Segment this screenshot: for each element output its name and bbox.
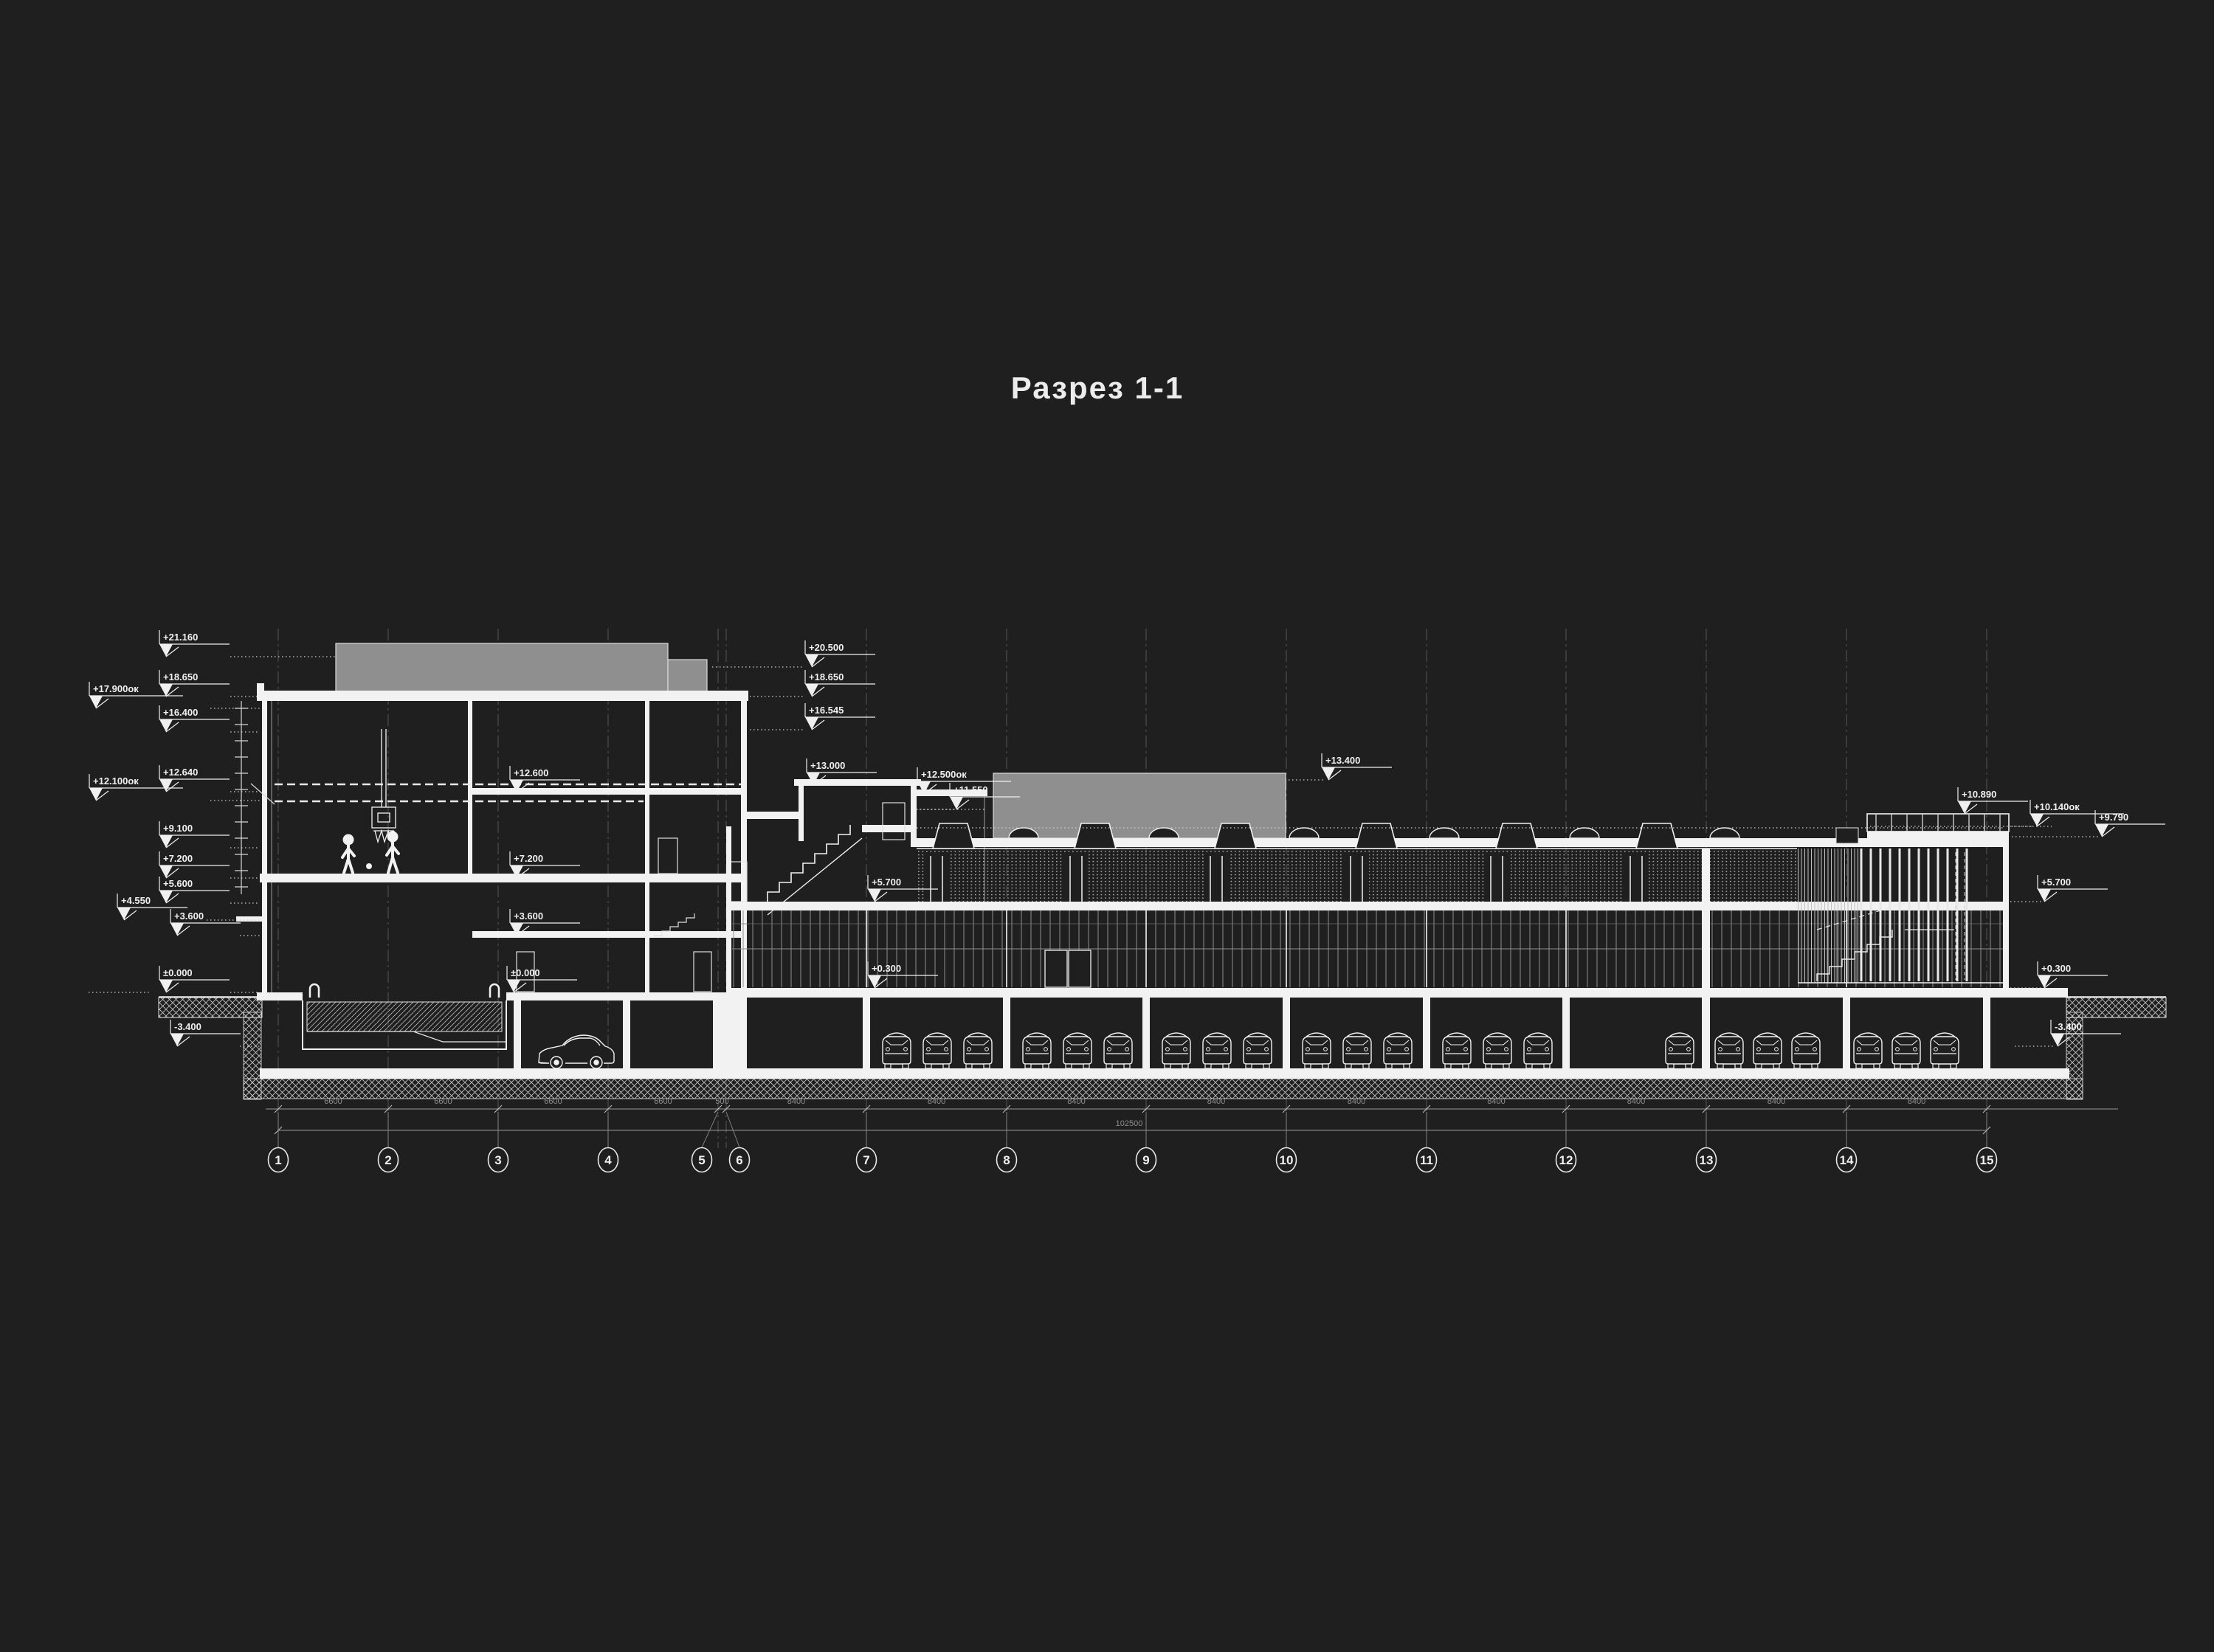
grid-bubble: 12 <box>1556 1112 1576 1172</box>
roof-vent-icon <box>933 823 974 849</box>
facade-ladder-icon <box>235 701 275 894</box>
elevation-value: +7.200 <box>514 853 543 864</box>
car-icon <box>1162 1033 1190 1068</box>
elevation-value: +16.400 <box>163 707 198 718</box>
car-icon <box>1023 1033 1051 1068</box>
ground-slab <box>726 988 2009 998</box>
pool-ladder-icon <box>490 984 499 998</box>
grid-bubble-number: 15 <box>1980 1153 1994 1167</box>
dim-label: 500 <box>715 1097 728 1106</box>
dim-label: 6600 <box>654 1097 672 1106</box>
elevation-value: +10.140ок <box>2034 801 2080 812</box>
elevation-value: +5.700 <box>2041 877 2071 888</box>
dim-label: 8400 <box>1627 1097 1645 1106</box>
elevation-mark: +10.890 <box>1958 787 2028 814</box>
grid-bubble-number: 3 <box>494 1153 501 1167</box>
left-building <box>235 643 748 1077</box>
grid-bubble: 11 <box>1417 1112 1437 1172</box>
elevation-value: +4.550 <box>121 895 151 906</box>
elevation-mark: +9.100 <box>159 821 230 848</box>
elevation-mark: -3.400 <box>170 1020 241 1046</box>
left-wall <box>262 699 267 995</box>
basement-column <box>623 1000 630 1068</box>
basketball-hoop-icon <box>372 729 396 842</box>
left-building-right-wall <box>741 699 747 1077</box>
elevation-value: -3.400 <box>2055 1021 2082 1032</box>
section-drawing: Разрез 1-1 <box>0 0 2214 1652</box>
car-icon <box>1854 1033 1882 1068</box>
elevation-mark: +20.500 <box>805 640 875 667</box>
grid-bubble: 4 <box>599 1112 618 1172</box>
dim-label: 6600 <box>544 1097 562 1106</box>
dim-label: 8400 <box>1768 1097 1785 1106</box>
grid-bubble-number: 9 <box>1142 1153 1149 1167</box>
elevation-value: +12.500ок <box>921 769 967 780</box>
elevation-value: +3.600 <box>514 910 543 922</box>
car-icon <box>1715 1033 1743 1068</box>
car-side-icon <box>539 1035 614 1068</box>
elevation-mark: +5.600 <box>159 877 230 903</box>
elevation-value: +16.545 <box>809 705 844 716</box>
elevation-value: +5.700 <box>872 877 901 888</box>
door <box>694 952 711 992</box>
exit-walkway <box>2004 988 2068 998</box>
grid-bubble-number: 4 <box>604 1153 612 1167</box>
elevation-value: +0.300 <box>872 963 901 974</box>
elevation-mark: ±0.000 <box>507 966 577 992</box>
grid-bubble-number: 11 <box>1420 1153 1433 1167</box>
elevation-value: +12.640 <box>163 767 198 778</box>
car-icon <box>923 1033 951 1068</box>
dim-total: 102500 <box>1116 1119 1143 1128</box>
elevation-value: +11.550 <box>953 784 988 795</box>
pool-water <box>307 1002 502 1031</box>
dim-label: 8400 <box>1067 1097 1085 1106</box>
dim-label: 6600 <box>324 1097 342 1106</box>
elevation-value: +5.600 <box>163 878 193 889</box>
pool <box>303 984 506 1049</box>
dim-label: 8400 <box>1348 1097 1365 1106</box>
elevation-value: +10.890 <box>1962 789 1996 800</box>
louver-screen-fine <box>1798 849 1860 983</box>
elevation-value: +13.400 <box>1325 755 1360 766</box>
elevation-value: +12.600 <box>514 767 548 778</box>
car-icon <box>1666 1033 1694 1068</box>
roof-vent-icon <box>1636 823 1677 849</box>
grid-bubble-number: 1 <box>275 1153 281 1167</box>
car-icon <box>1443 1033 1471 1068</box>
elevation-value: +18.650 <box>163 671 198 682</box>
dim-label: 8400 <box>1487 1097 1505 1106</box>
elevation-value: +9.790 <box>2099 812 2128 823</box>
grid-bubble-number: 8 <box>1003 1153 1010 1167</box>
drawing-title: Разрез 1-1 <box>1011 370 1184 405</box>
car-icon <box>1343 1033 1371 1068</box>
car-icon <box>1244 1033 1272 1068</box>
car-icon <box>1104 1033 1132 1068</box>
basement-column <box>1562 998 1570 1068</box>
dim-label: 8400 <box>787 1097 805 1106</box>
roof-dome-icon <box>1710 828 1739 838</box>
roof-dome-icon <box>1570 828 1599 838</box>
door <box>883 803 905 840</box>
pool-ladder-icon <box>310 984 319 998</box>
basement-column <box>1283 998 1290 1068</box>
elevation-mark: +16.545 <box>805 703 875 730</box>
elevation-mark: +5.700 <box>2038 875 2108 902</box>
basement-column <box>1423 998 1430 1068</box>
elevation-value: +20.500 <box>809 642 844 653</box>
ball-icon <box>366 863 372 869</box>
grid-bubble: 3 <box>489 1112 508 1172</box>
elevation-value: +21.160 <box>163 632 198 643</box>
parking-cars <box>883 1033 1959 1068</box>
elevation-value: +3.600 <box>174 910 204 922</box>
grid-bubble: 7 <box>857 1112 877 1172</box>
elevation-mark: +7.200 <box>159 851 230 878</box>
car-icon <box>964 1033 992 1068</box>
dim-label: 6600 <box>434 1097 452 1106</box>
grid-bubble-number: 13 <box>1700 1153 1714 1167</box>
elevation-value: ±0.000 <box>511 967 540 978</box>
person-figure <box>387 833 399 874</box>
basement-column <box>1142 998 1150 1068</box>
right-building <box>726 773 2068 1068</box>
grid-bubble: 5 <box>692 1112 719 1172</box>
dim-label: 8400 <box>1207 1097 1225 1106</box>
car-icon <box>1892 1033 1920 1068</box>
elevation-value: -3.400 <box>174 1021 201 1032</box>
elevation-mark: +18.650 <box>805 670 875 697</box>
grid-bubble: 1 <box>269 1112 289 1172</box>
roof-dome-icon <box>1289 828 1319 838</box>
elevation-value: +7.200 <box>163 853 193 864</box>
dim-label: 8400 <box>928 1097 945 1106</box>
elevation-value: ±0.000 <box>163 967 193 978</box>
grid-bubble: 15 <box>1977 1112 1997 1172</box>
elevation-mark: +3.600 <box>170 909 241 936</box>
gym-floor-slab <box>260 874 747 882</box>
car-icon <box>1483 1033 1511 1068</box>
roof-vent-icon <box>1496 823 1537 849</box>
elevation-value: +9.100 <box>163 823 193 834</box>
elevation-mark: +18.650 <box>159 670 230 697</box>
grid-bubble-number: 10 <box>1280 1153 1294 1167</box>
elevation-value: +18.650 <box>809 671 844 682</box>
car-icon <box>883 1033 911 1068</box>
stair-steps <box>768 825 850 902</box>
basement-column <box>1003 998 1010 1068</box>
car-icon <box>1303 1033 1331 1068</box>
elevation-value: +12.100ок <box>93 775 139 787</box>
basement-column <box>1843 998 1850 1068</box>
car-icon <box>1792 1033 1820 1068</box>
grid-bubble: 2 <box>379 1112 399 1172</box>
roof-penthouse-block-small <box>668 660 707 692</box>
person-figure <box>342 836 354 874</box>
elevation-value: +0.300 <box>2041 963 2071 974</box>
car-icon <box>1384 1033 1412 1068</box>
door <box>1045 950 1067 987</box>
grid-bubble: 8 <box>997 1112 1017 1172</box>
roof-penthouse-block <box>336 643 668 692</box>
basement-wall <box>713 1000 741 1068</box>
roof-dome-icon <box>1430 828 1459 838</box>
grid-bubble: 6 <box>726 1112 750 1172</box>
elevation-mark: ±0.000 <box>159 966 230 992</box>
car-icon <box>1203 1033 1231 1068</box>
elevation-mark: +12.100ок <box>89 774 183 801</box>
car-icon <box>1931 1033 1959 1068</box>
drawing-sheet: Разрез 1-1 <box>0 0 2214 1652</box>
elevation-value: +13.000 <box>810 760 845 771</box>
car-icon <box>1524 1033 1552 1068</box>
basement-column <box>514 1000 521 1068</box>
door <box>658 838 677 874</box>
elevation-mark: -3.400 <box>2051 1020 2121 1046</box>
entry-canopy <box>236 916 264 922</box>
elevation-mark: +21.160 <box>159 630 230 657</box>
grid-bubble-number: 6 <box>736 1153 742 1167</box>
elevation-mark: +0.300 <box>2038 961 2108 988</box>
grid-bubble-number: 12 <box>1559 1153 1573 1167</box>
dim-label: 8400 <box>1908 1097 1925 1106</box>
roof-slab <box>257 691 748 701</box>
basement-slab <box>260 1068 2069 1079</box>
basement-column <box>863 998 870 1068</box>
grid-bubble-number: 2 <box>384 1153 391 1167</box>
elevation-mark: +16.400 <box>159 705 230 732</box>
car-icon <box>1063 1033 1092 1068</box>
grid-bubble: 14 <box>1837 1112 1857 1172</box>
elevation-value: +17.900ок <box>93 683 139 694</box>
grid-bubble-number: 5 <box>698 1153 705 1167</box>
car-icon <box>1753 1033 1782 1068</box>
basement-column <box>1983 998 1990 1068</box>
shear-wall <box>1702 849 1710 1068</box>
roof-vent-icon <box>1215 823 1256 849</box>
grid-bubble-number: 7 <box>863 1153 869 1167</box>
dimension-strings: 6600660066006600500840084008400840084008… <box>266 1097 2118 1134</box>
roof-railing <box>1836 814 2052 847</box>
elevation-mark: +9.790 <box>2095 810 2165 837</box>
grid-bubble-number: 14 <box>1840 1153 1854 1167</box>
roof-vent-icon <box>1075 823 1116 849</box>
grid-bubble: 13 <box>1697 1112 1717 1172</box>
door <box>1069 950 1091 987</box>
roof-vent-icon <box>1356 823 1397 849</box>
elevation-mark: +13.400 <box>1322 753 1392 780</box>
grid-bubble: 10 <box>1277 1112 1297 1172</box>
